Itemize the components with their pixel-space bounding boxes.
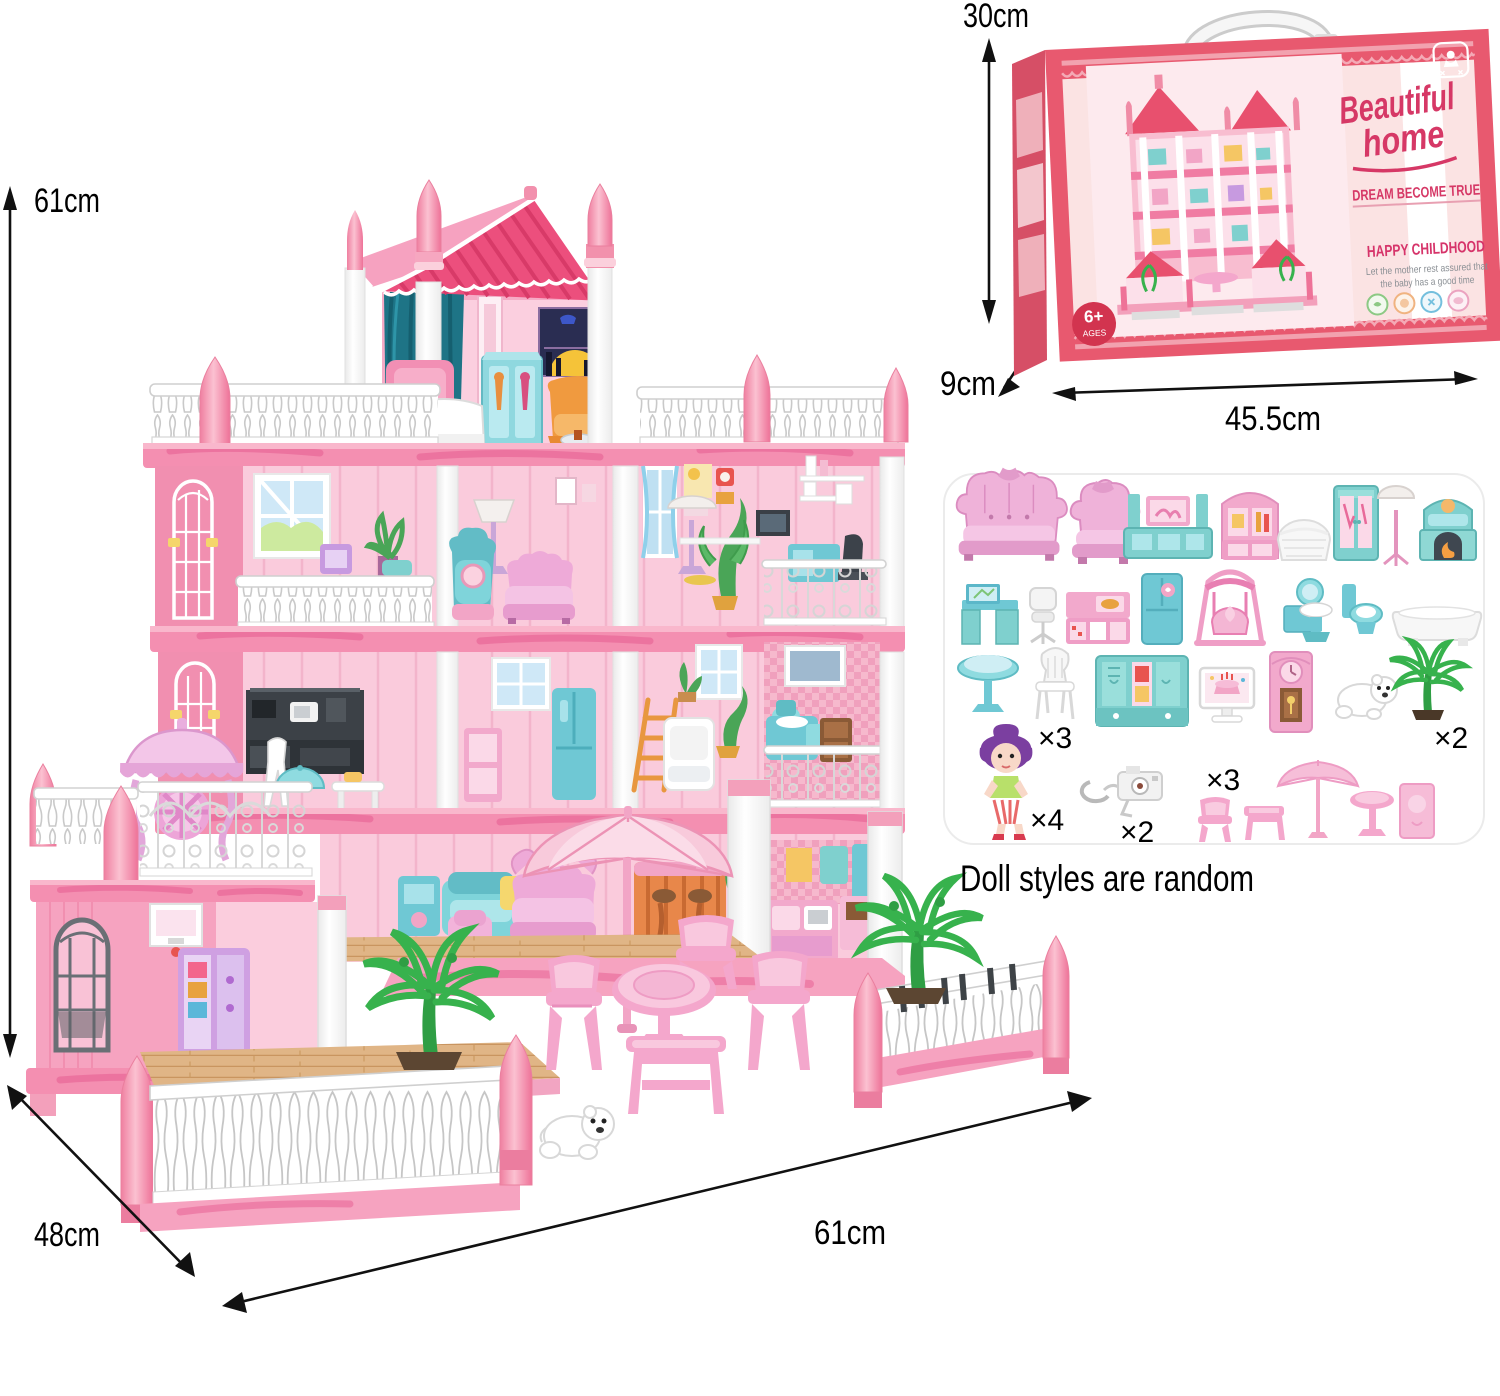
svg-text:9cm: 9cm bbox=[940, 365, 996, 403]
svg-text:×3: ×3 bbox=[1038, 722, 1072, 755]
svg-text:61cm: 61cm bbox=[814, 1214, 886, 1252]
svg-text:Doll styles are random: Doll styles are random bbox=[960, 858, 1254, 899]
svg-text:×3: ×3 bbox=[1206, 764, 1240, 797]
svg-text:48cm: 48cm bbox=[34, 1216, 100, 1254]
svg-text:45.5cm: 45.5cm bbox=[1225, 400, 1321, 438]
svg-text:×4: ×4 bbox=[1030, 804, 1064, 837]
svg-text:AGES: AGES bbox=[1082, 327, 1106, 338]
svg-text:30cm: 30cm bbox=[963, 0, 1029, 35]
svg-text:×2: ×2 bbox=[1120, 816, 1154, 849]
svg-text:6+: 6+ bbox=[1084, 307, 1104, 327]
svg-text:×2: ×2 bbox=[1434, 722, 1468, 755]
svg-text:61cm: 61cm bbox=[34, 182, 100, 220]
